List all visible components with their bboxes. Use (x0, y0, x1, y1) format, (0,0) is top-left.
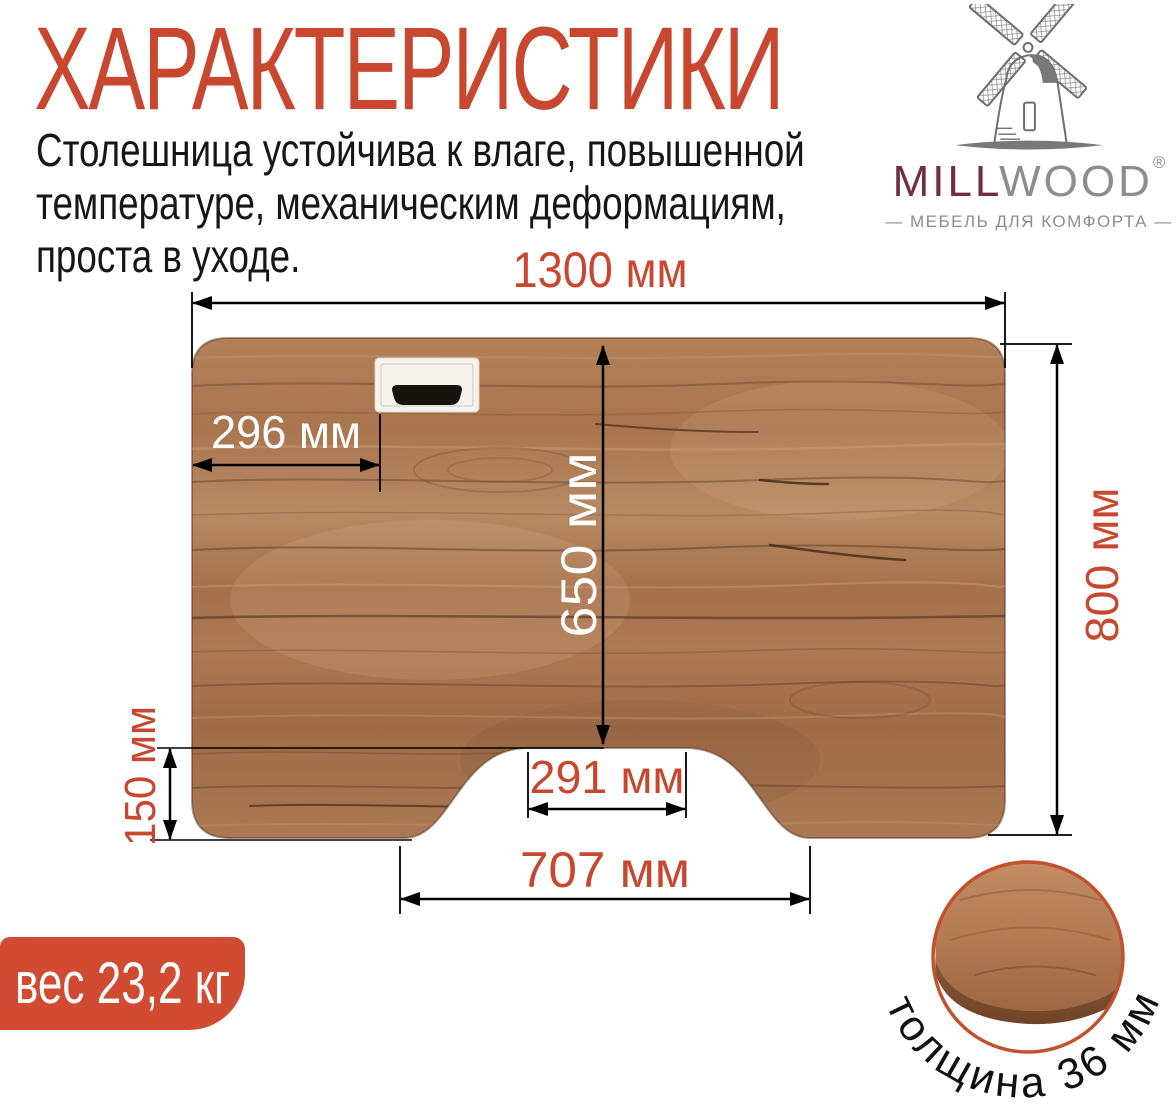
product-infographic: ХАРАКТЕРИСТИКИ Столешница устойчива к вл… (0, 0, 1176, 1112)
label-grommet-offset: 296 мм (211, 406, 361, 458)
label-total-depth: 800 мм (1076, 488, 1128, 643)
label-center-depth: 650 мм (551, 453, 607, 638)
thickness-detail: толщина 36 мм (877, 862, 1171, 1108)
grommet-slot (392, 385, 462, 405)
label-cutout-bottom: 707 мм (520, 842, 690, 898)
label-side-depth: 150 мм (116, 706, 165, 846)
cable-grommet (375, 358, 479, 412)
label-top-width: 1300 мм (513, 242, 688, 298)
label-cutout-top: 291 мм (530, 751, 685, 803)
weight-badge: вес 23,2 кг (0, 937, 245, 1030)
weight-badge-label: вес 23,2 кг (15, 955, 230, 1013)
